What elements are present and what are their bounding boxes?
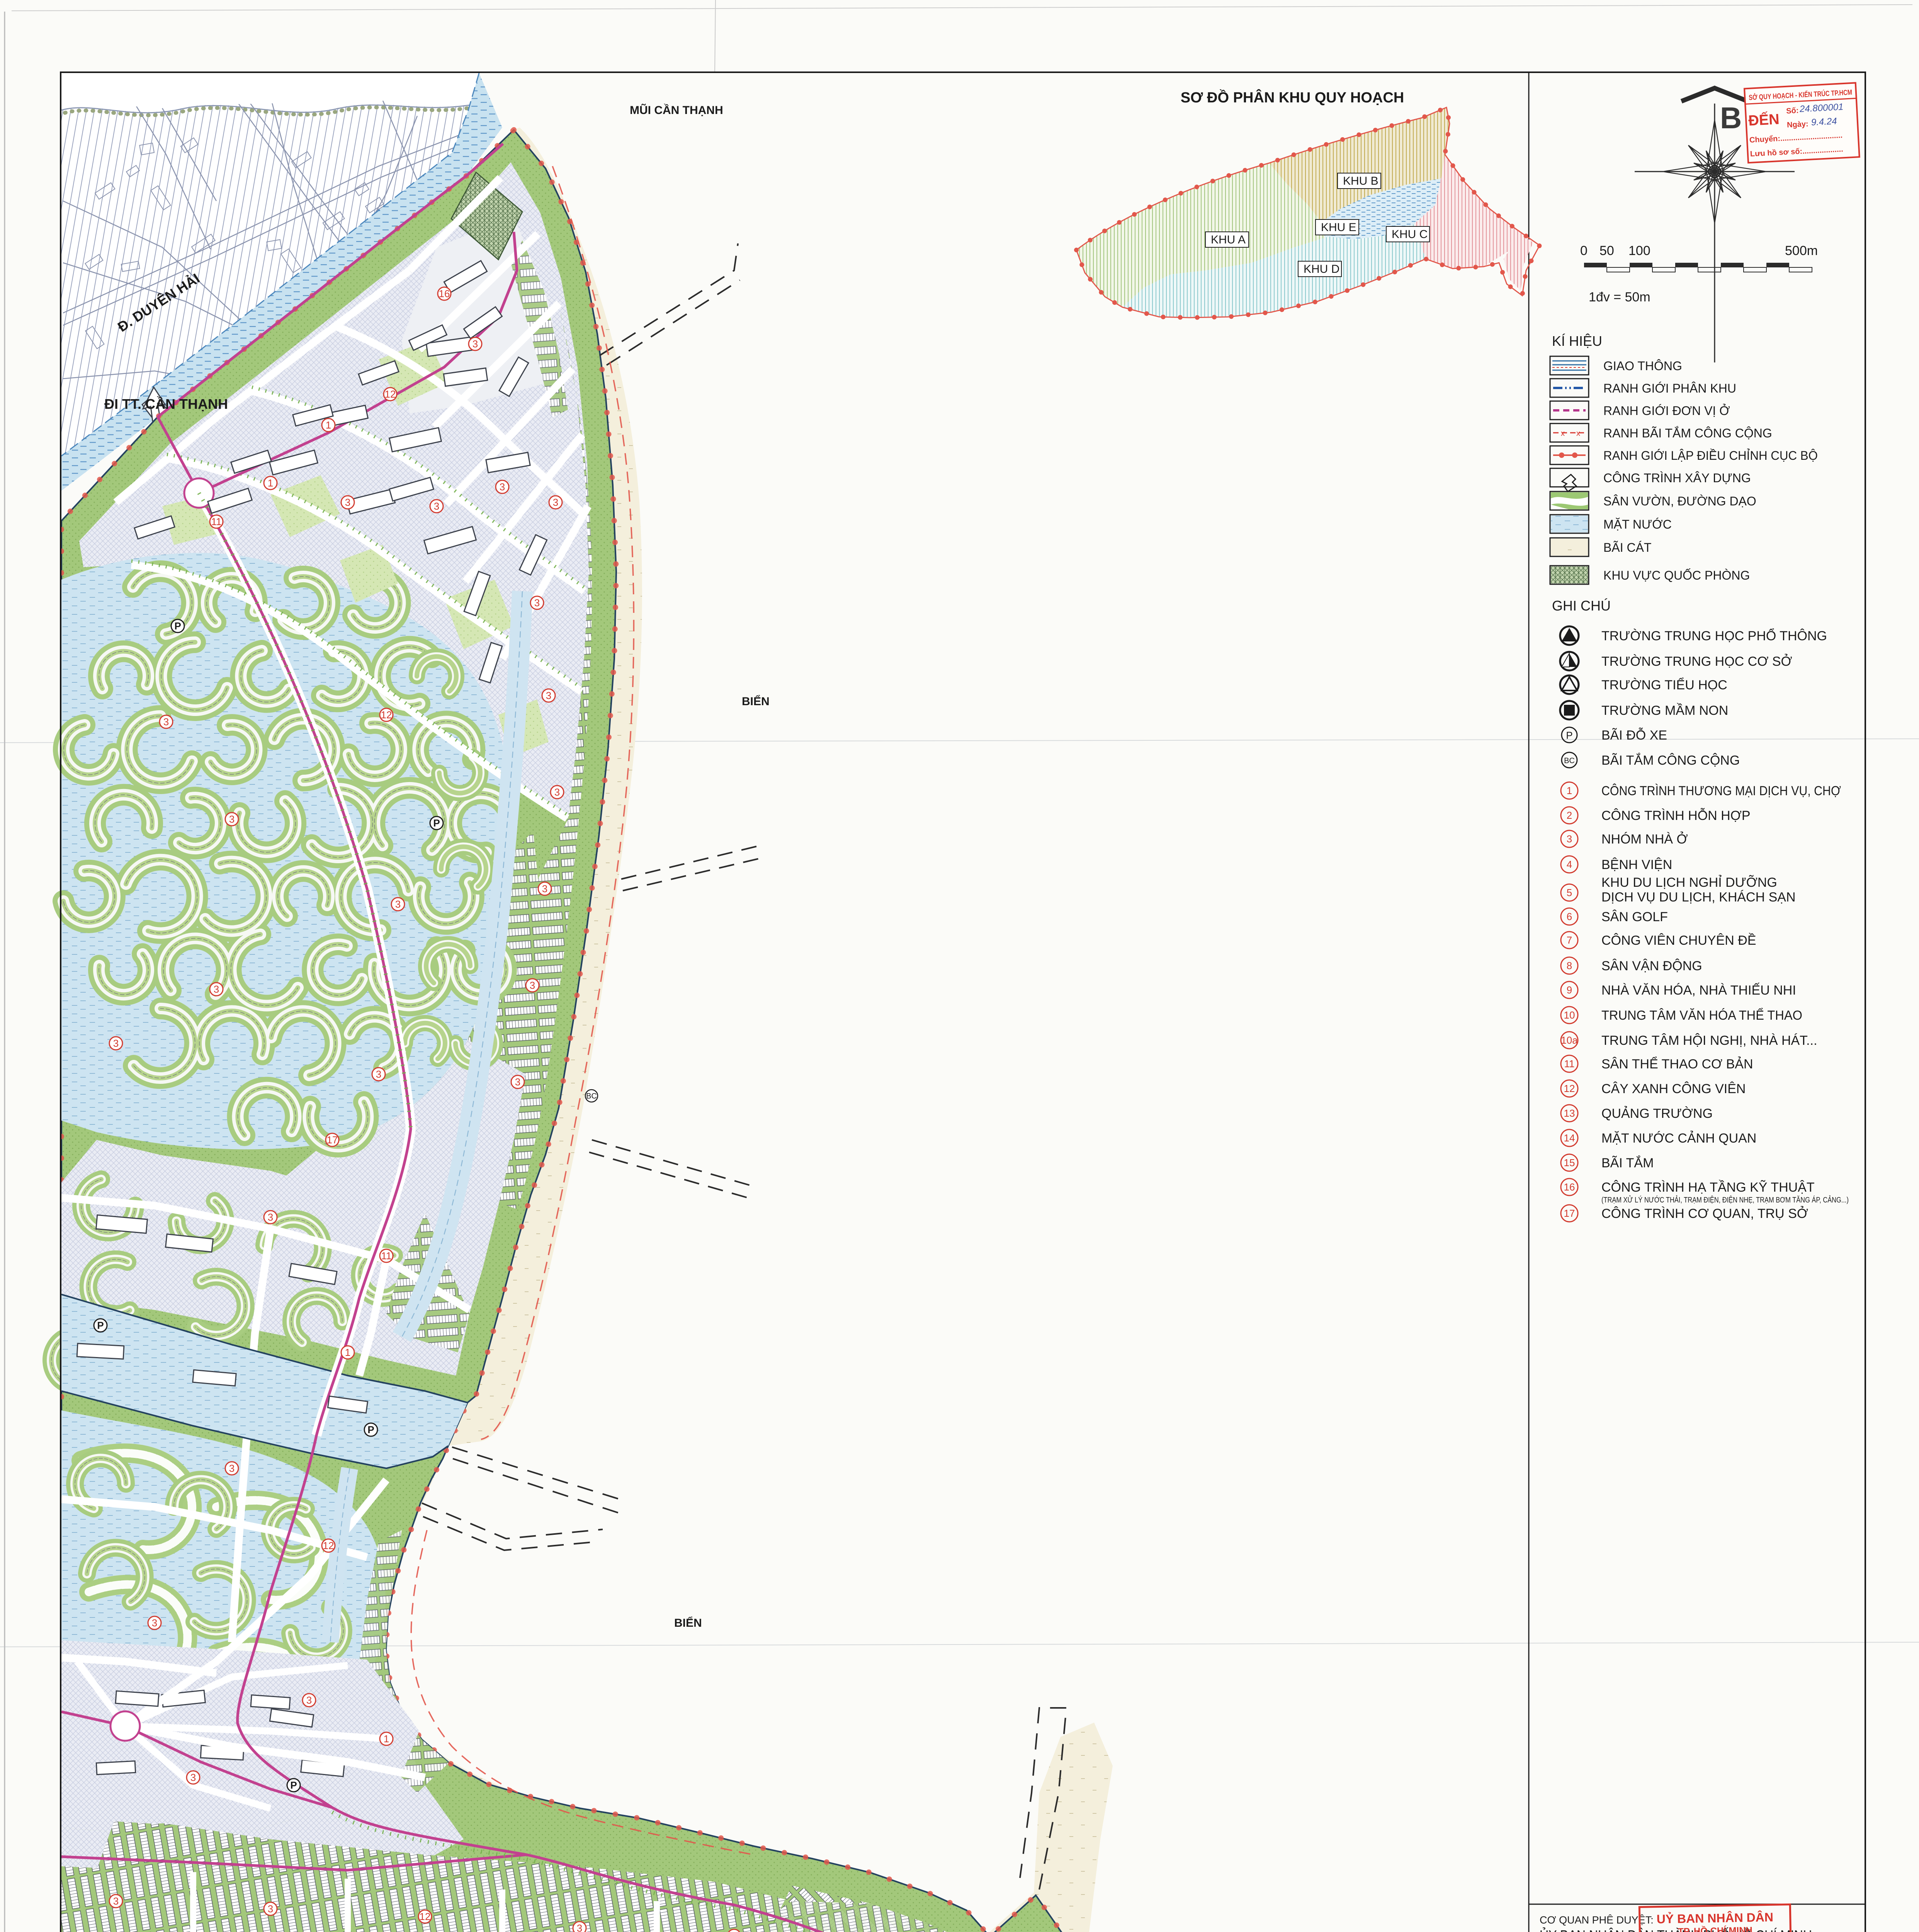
svg-text:12: 12 <box>385 388 396 400</box>
svg-text:16: 16 <box>1564 1181 1575 1193</box>
svg-text:1: 1 <box>345 1347 350 1358</box>
svg-text:GHI CHÚ: GHI CHÚ <box>1552 598 1611 614</box>
svg-text:TRƯỜNG TIỂU HỌC: TRƯỜNG TIỂU HỌC <box>1601 678 1727 692</box>
svg-text:RANH GIỚI LẬP ĐIỀU CHỈNH CỤC B: RANH GIỚI LẬP ĐIỀU CHỈNH CỤC BỘ <box>1603 449 1818 463</box>
svg-text:BC: BC <box>586 1092 597 1100</box>
svg-text:KHU C: KHU C <box>1392 228 1428 241</box>
svg-text:1: 1 <box>731 1930 737 1932</box>
svg-text:RANH GIỚI PHÂN KHU: RANH GIỚI PHÂN KHU <box>1603 381 1736 395</box>
svg-text:CÔNG TRÌNH THƯƠNG MẠI DỊCH VỤ,: CÔNG TRÌNH THƯƠNG MẠI DỊCH VỤ, CHỢ <box>1601 784 1841 798</box>
svg-text:MẶT NƯỚC CẢNH QUAN: MẶT NƯỚC CẢNH QUAN <box>1601 1131 1756 1146</box>
svg-text:15: 15 <box>1564 1157 1575 1168</box>
svg-text:10: 10 <box>1564 1009 1575 1021</box>
svg-text:17: 17 <box>1564 1207 1575 1219</box>
svg-text:3: 3 <box>542 883 547 895</box>
svg-text:CÂY XANH CÔNG VIÊN: CÂY XANH CÔNG VIÊN <box>1601 1082 1746 1096</box>
svg-text:x: x <box>1576 429 1580 438</box>
svg-text:UỶ BAN NHÂN DÂN: UỶ BAN NHÂN DÂN <box>1656 1910 1773 1926</box>
svg-text:BC: BC <box>1564 757 1575 765</box>
svg-text:CÔNG TRÌNH HẠ TẦNG KỸ THUẬT: CÔNG TRÌNH HẠ TẦNG KỸ THUẬT <box>1601 1180 1815 1195</box>
svg-text:12: 12 <box>1564 1083 1575 1094</box>
svg-text:16: 16 <box>439 288 450 299</box>
svg-text:11: 11 <box>211 516 222 527</box>
svg-text:3: 3 <box>229 813 235 825</box>
svg-text:1đv = 50m: 1đv = 50m <box>1589 290 1650 304</box>
svg-text:QUẢNG TRƯỜNG: QUẢNG TRƯỜNG <box>1601 1106 1713 1121</box>
svg-text:B: B <box>1720 101 1742 135</box>
svg-text:SƠ ĐỒ PHÂN KHU QUY HOẠCH: SƠ ĐỒ PHÂN KHU QUY HOẠCH <box>1181 89 1404 106</box>
svg-text:DỊCH VỤ DU LỊCH, KHÁCH SẠN: DỊCH VỤ DU LỊCH, KHÁCH SẠN <box>1601 890 1796 905</box>
svg-text:12: 12 <box>323 1540 334 1551</box>
svg-text:TRƯỜNG TRUNG HỌC CƠ SỞ: TRƯỜNG TRUNG HỌC CƠ SỞ <box>1601 654 1792 669</box>
svg-text:8: 8 <box>1567 960 1572 971</box>
svg-text:3: 3 <box>163 716 169 728</box>
svg-text:NHÀ VĂN HÓA, NHÀ THIẾU NHI: NHÀ VĂN HÓA, NHÀ THIẾU NHI <box>1601 983 1796 998</box>
svg-text:KHU A: KHU A <box>1211 233 1246 246</box>
svg-text:SÂN VƯỜN, ĐƯỜNG DẠO: SÂN VƯỜN, ĐƯỜNG DẠO <box>1603 494 1756 508</box>
svg-text:3: 3 <box>113 1037 119 1049</box>
svg-text:KÍ HIỆU: KÍ HIỆU <box>1552 333 1602 349</box>
svg-text:3: 3 <box>376 1068 381 1080</box>
svg-text:3: 3 <box>577 1922 582 1932</box>
svg-text:KHU VỰC QUỐC PHÒNG: KHU VỰC QUỐC PHÒNG <box>1603 568 1750 582</box>
svg-text:13: 13 <box>1564 1107 1575 1119</box>
svg-text:P: P <box>97 1320 104 1331</box>
svg-text:P: P <box>174 620 181 632</box>
svg-text:4: 4 <box>1567 859 1572 870</box>
svg-text:BỆNH VIỆN: BỆNH VIỆN <box>1601 857 1672 872</box>
svg-text:14: 14 <box>1564 1132 1575 1144</box>
svg-text:9.4.24: 9.4.24 <box>1811 116 1837 128</box>
svg-text:3: 3 <box>229 1463 235 1474</box>
svg-text:Ngày:: Ngày: <box>1787 120 1809 129</box>
svg-text:3: 3 <box>434 500 439 512</box>
svg-text:BÃI TẮM: BÃI TẮM <box>1601 1156 1654 1170</box>
svg-text:3: 3 <box>534 597 540 609</box>
svg-text:50: 50 <box>1599 243 1614 258</box>
svg-text:1: 1 <box>268 477 273 489</box>
svg-text:11: 11 <box>1564 1058 1575 1070</box>
svg-text:RANH GIỚI ĐƠN VỊ Ở: RANH GIỚI ĐƠN VỊ Ở <box>1603 404 1730 418</box>
svg-text:3: 3 <box>530 980 535 991</box>
svg-text:KHU B: KHU B <box>1343 175 1378 187</box>
svg-text:1: 1 <box>1567 785 1572 796</box>
svg-text:P: P <box>290 1779 297 1791</box>
svg-text:3: 3 <box>500 481 505 493</box>
svg-text:1: 1 <box>384 1733 389 1745</box>
svg-text:3: 3 <box>268 1903 273 1915</box>
svg-text:BÃI TẮM CÔNG CỘNG: BÃI TẮM CÔNG CỘNG <box>1601 753 1740 768</box>
svg-text:MẶT NƯỚC: MẶT NƯỚC <box>1603 517 1672 531</box>
svg-text:ỦY BAN NHÂN DÂN THÀNH PHỐ HỒ C: ỦY BAN NHÂN DÂN THÀNH PHỐ HỒ CHÍ MINH <box>1540 1927 1812 1932</box>
svg-text:12: 12 <box>420 1911 431 1922</box>
svg-text:3: 3 <box>473 338 478 350</box>
svg-text:CÔNG TRÌNH HỖN HỢP: CÔNG TRÌNH HỖN HỢP <box>1601 808 1751 823</box>
svg-text:3: 3 <box>515 1076 520 1088</box>
svg-text:7: 7 <box>1567 934 1572 946</box>
svg-text:BIỂN: BIỂN <box>742 695 770 708</box>
svg-text:CƠ QUAN PHÊ DUYỆT:: CƠ QUAN PHÊ DUYỆT: <box>1540 1914 1654 1926</box>
svg-text:9: 9 <box>1567 984 1572 996</box>
svg-text:CÔNG TRÌNH XÂY DỰNG: CÔNG TRÌNH XÂY DỰNG <box>1603 471 1751 485</box>
svg-text:CÔNG TRÌNH CƠ QUAN, TRỤ SỞ: CÔNG TRÌNH CƠ QUAN, TRỤ SỞ <box>1601 1206 1808 1221</box>
svg-text:ĐẾN: ĐẾN <box>1748 111 1780 129</box>
svg-text:11: 11 <box>381 1250 392 1262</box>
svg-text:0: 0 <box>1580 243 1588 258</box>
svg-text:3: 3 <box>190 1772 196 1783</box>
svg-text:P: P <box>1566 730 1572 741</box>
svg-text:3: 3 <box>268 1211 273 1223</box>
svg-text:CÔNG VIÊN CHUYÊN ĐỀ: CÔNG VIÊN CHUYÊN ĐỀ <box>1601 933 1756 948</box>
svg-text:3: 3 <box>345 497 350 508</box>
svg-text:6: 6 <box>1567 911 1572 922</box>
svg-text:500m: 500m <box>1785 243 1818 258</box>
svg-text:KHU D: KHU D <box>1304 263 1339 276</box>
svg-text:SÂN VẬN ĐỘNG: SÂN VẬN ĐỘNG <box>1601 959 1702 973</box>
svg-text:3: 3 <box>1567 833 1572 845</box>
svg-text:GIAO THÔNG: GIAO THÔNG <box>1603 359 1682 373</box>
svg-text:BÃI CÁT: BÃI CÁT <box>1603 541 1651 554</box>
svg-text:1: 1 <box>326 419 331 431</box>
svg-text:TRUNG TÂM VĂN HÓA THỂ THAO: TRUNG TÂM VĂN HÓA THỂ THAO <box>1601 1008 1802 1023</box>
svg-text:NHÓM NHÀ Ở: NHÓM NHÀ Ở <box>1601 832 1688 847</box>
svg-text:MŨI CẦN THẠNH: MŨI CẦN THẠNH <box>630 104 723 117</box>
svg-text:TRƯỜNG TRUNG HỌC PHỔ THÔNG: TRƯỜNG TRUNG HỌC PHỔ THÔNG <box>1601 629 1827 643</box>
svg-text:BÃI ĐỖ XE: BÃI ĐỖ XE <box>1601 728 1667 743</box>
svg-text:ĐI TT. CẦN THẠNH: ĐI TT. CẦN THẠNH <box>104 396 228 412</box>
svg-text:100: 100 <box>1628 243 1650 258</box>
svg-text:TRƯỜNG MẦM NON: TRƯỜNG MẦM NON <box>1601 703 1728 718</box>
svg-text:3: 3 <box>553 497 558 508</box>
svg-text:Số:: Số: <box>1786 106 1799 116</box>
svg-text:KHU E: KHU E <box>1321 221 1356 234</box>
svg-text:12: 12 <box>381 709 392 721</box>
svg-text:3: 3 <box>546 690 551 701</box>
svg-text:SÂN GOLF: SÂN GOLF <box>1601 910 1668 924</box>
svg-text:TRUNG TÂM HỘI NGHỊ, NHÀ HÁT...: TRUNG TÂM HỘI NGHỊ, NHÀ HÁT... <box>1601 1033 1817 1048</box>
svg-text:x: x <box>1561 429 1565 438</box>
svg-text:3: 3 <box>395 898 401 910</box>
svg-text:3: 3 <box>306 1694 312 1706</box>
svg-text:10a: 10a <box>1561 1034 1578 1046</box>
svg-text:3: 3 <box>113 1895 119 1907</box>
svg-text:(TRẠM XỬ LÝ NƯỚC THẢI, TRẠM ĐI: (TRẠM XỬ LÝ NƯỚC THẢI, TRẠM ĐIỆN, ĐIỆN N… <box>1601 1195 1849 1204</box>
svg-text:P: P <box>367 1424 374 1435</box>
svg-text:3: 3 <box>152 1617 157 1629</box>
svg-text:17: 17 <box>327 1134 338 1146</box>
svg-text:P: P <box>433 817 440 829</box>
svg-text:2: 2 <box>1567 810 1572 821</box>
svg-text:SÂN THỂ THAO CƠ BẢN: SÂN THỂ THAO CƠ BẢN <box>1601 1057 1753 1071</box>
svg-text:KHU DU LỊCH NGHỈ DƯỠNG: KHU DU LỊCH NGHỈ DƯỠNG <box>1601 875 1777 890</box>
svg-text:5: 5 <box>1567 887 1572 898</box>
svg-text:3: 3 <box>214 983 219 995</box>
svg-text:RANH BÃI TẮM CÔNG CỘNG: RANH BÃI TẮM CÔNG CỘNG <box>1603 426 1772 440</box>
svg-text:3: 3 <box>554 786 560 798</box>
svg-text:BIỂN: BIỂN <box>674 1616 702 1629</box>
